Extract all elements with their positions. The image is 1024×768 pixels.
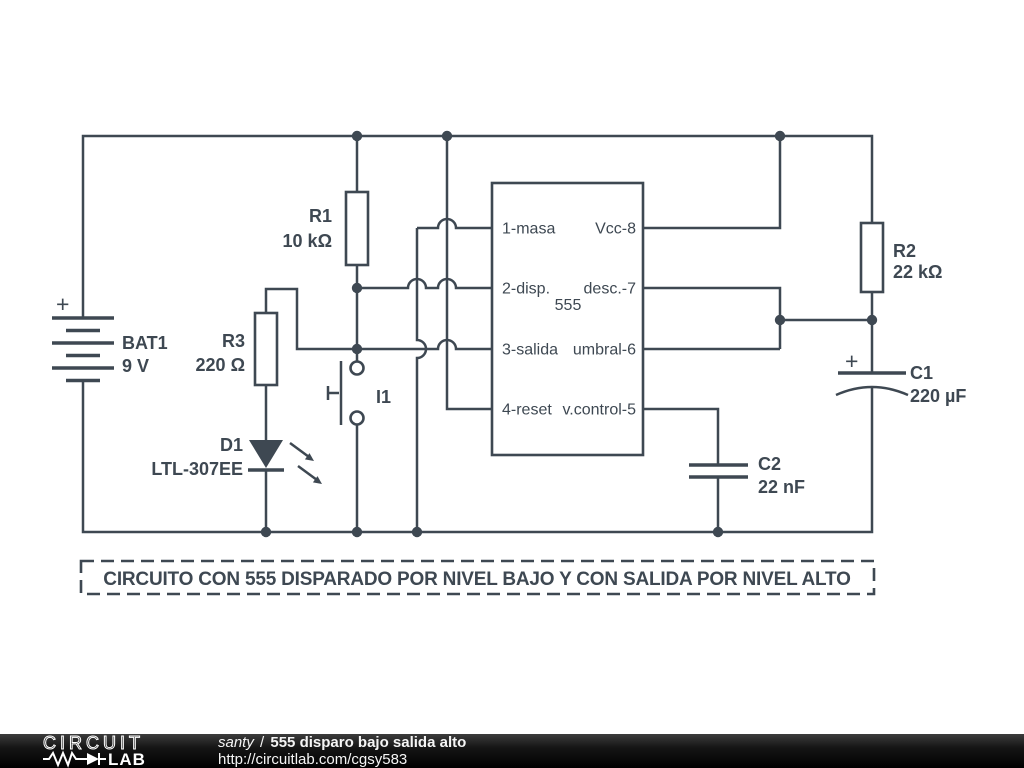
wire-desc7 — [643, 288, 780, 349]
junction-dot — [867, 315, 877, 325]
logo-word-lab: LAB — [108, 750, 146, 768]
wire-r3-pin3 — [266, 289, 492, 349]
ic-pin5-label: v.control-5 — [562, 402, 636, 419]
r2-ref-label: R2 — [893, 241, 916, 261]
battery-ref-label: BAT1 — [122, 333, 168, 353]
junction-dot — [713, 527, 723, 537]
c2-value-label: 22 nF — [758, 477, 805, 497]
junction-dot — [775, 315, 785, 325]
ic-part-label: 555 — [555, 297, 582, 314]
ic-pin4-label: 4-reset — [502, 402, 552, 419]
r3-ref-label: R3 — [222, 331, 245, 351]
led-d1[interactable]: D1 LTL-307EE — [151, 435, 322, 484]
pushbutton-i1[interactable]: I1 — [328, 361, 391, 425]
ic-pin3-label: 3-salida — [502, 342, 558, 359]
resistor-body — [861, 223, 883, 292]
caption-box: CIRCUITO CON 555 DISPARADO POR NIVEL BAJ… — [81, 561, 874, 594]
junction-dot — [352, 131, 362, 141]
led-triangle — [249, 440, 283, 468]
wire-bottom-rail — [83, 380, 872, 532]
footer-text-block: santy / 555 disparo bajo salida alto htt… — [218, 735, 466, 768]
junction-dot — [775, 131, 785, 141]
resistor-r3[interactable]: R3 220 Ω — [196, 313, 277, 385]
c1-value-label: 220 µF — [910, 386, 966, 406]
ic-pin6-label: umbral-6 — [573, 342, 636, 359]
resistor-r1[interactable]: R1 10 kΩ — [283, 192, 368, 265]
ic-pin8-label: Vcc-8 — [595, 221, 636, 238]
caption-text: CIRCUITO CON 555 DISPARADO POR NIVEL BAJ… — [103, 569, 850, 590]
led-arrow-2 — [298, 466, 317, 480]
led-arrow-1 — [290, 443, 309, 457]
resistor-body — [255, 313, 277, 385]
c1-ref-label: C1 — [910, 363, 933, 383]
battery-plus-sign: + — [56, 291, 69, 317]
capacitor-c2[interactable]: C2 22 nF — [689, 454, 805, 497]
footer-bar: CIRCUIT LAB santy / 555 disparo bajo sal… — [0, 734, 1024, 768]
wire-ground-column — [417, 228, 426, 532]
r1-value-label: 10 kΩ — [283, 231, 332, 251]
r3-value-label: 220 Ω — [196, 355, 245, 375]
button-terminal-bottom — [351, 412, 364, 425]
d1-value-label: LTL-307EE — [151, 459, 243, 479]
button-terminal-top — [351, 362, 364, 375]
wire-pin2 — [357, 279, 492, 288]
c1-plus-sign: + — [845, 348, 858, 374]
junction-dot — [261, 527, 271, 537]
battery-value-label: 9 V — [122, 356, 149, 376]
footer-author: santy — [218, 734, 254, 751]
junction-dot — [352, 344, 362, 354]
wire-vcc8 — [643, 136, 780, 228]
resistor-body — [346, 192, 368, 265]
ic-pin1-label: 1-masa — [502, 221, 555, 238]
junction-dot — [442, 131, 452, 141]
footer-divider: / — [258, 734, 266, 751]
ic-pin7-label: desc.-7 — [584, 281, 637, 298]
wire-vcontrol5 — [643, 409, 718, 465]
r1-ref-label: R1 — [309, 206, 332, 226]
junction-dot — [352, 283, 362, 293]
circuitlab-page: + BAT1 9 V R1 10 kΩ R3 220 Ω R2 22 kΩ 1-… — [0, 0, 1024, 768]
wire-reset-vcc — [447, 136, 492, 409]
c2-ref-label: C2 — [758, 454, 781, 474]
schematic-canvas[interactable]: + BAT1 9 V R1 10 kΩ R3 220 Ω R2 22 kΩ 1-… — [0, 0, 1024, 734]
i1-ref-label: I1 — [376, 387, 391, 407]
d1-ref-label: D1 — [220, 435, 243, 455]
footer-circuit-title: 555 disparo bajo salida alto — [270, 734, 466, 751]
ic-555[interactable]: 1-masa 2-disp. 3-salida 4-reset Vcc-8 de… — [492, 183, 643, 455]
junction-dot — [352, 527, 362, 537]
capacitor-c1[interactable]: + C1 220 µF — [836, 348, 966, 406]
footer-url-link[interactable]: http://circuitlab.com/cgsy583 — [218, 752, 466, 768]
junction-dot — [412, 527, 422, 537]
battery-bat1[interactable]: + BAT1 9 V — [52, 291, 168, 381]
logo-resistor-diode-icon — [43, 753, 106, 765]
resistor-r2[interactable]: R2 22 kΩ — [861, 223, 942, 292]
r2-value-label: 22 kΩ — [893, 262, 942, 282]
ic-pin2-label: 2-disp. — [502, 281, 550, 298]
footer-title-line: santy / 555 disparo bajo salida alto — [218, 735, 466, 751]
circuitlab-logo[interactable]: CIRCUIT LAB — [42, 734, 174, 768]
wire-pin1-ground — [417, 219, 492, 228]
